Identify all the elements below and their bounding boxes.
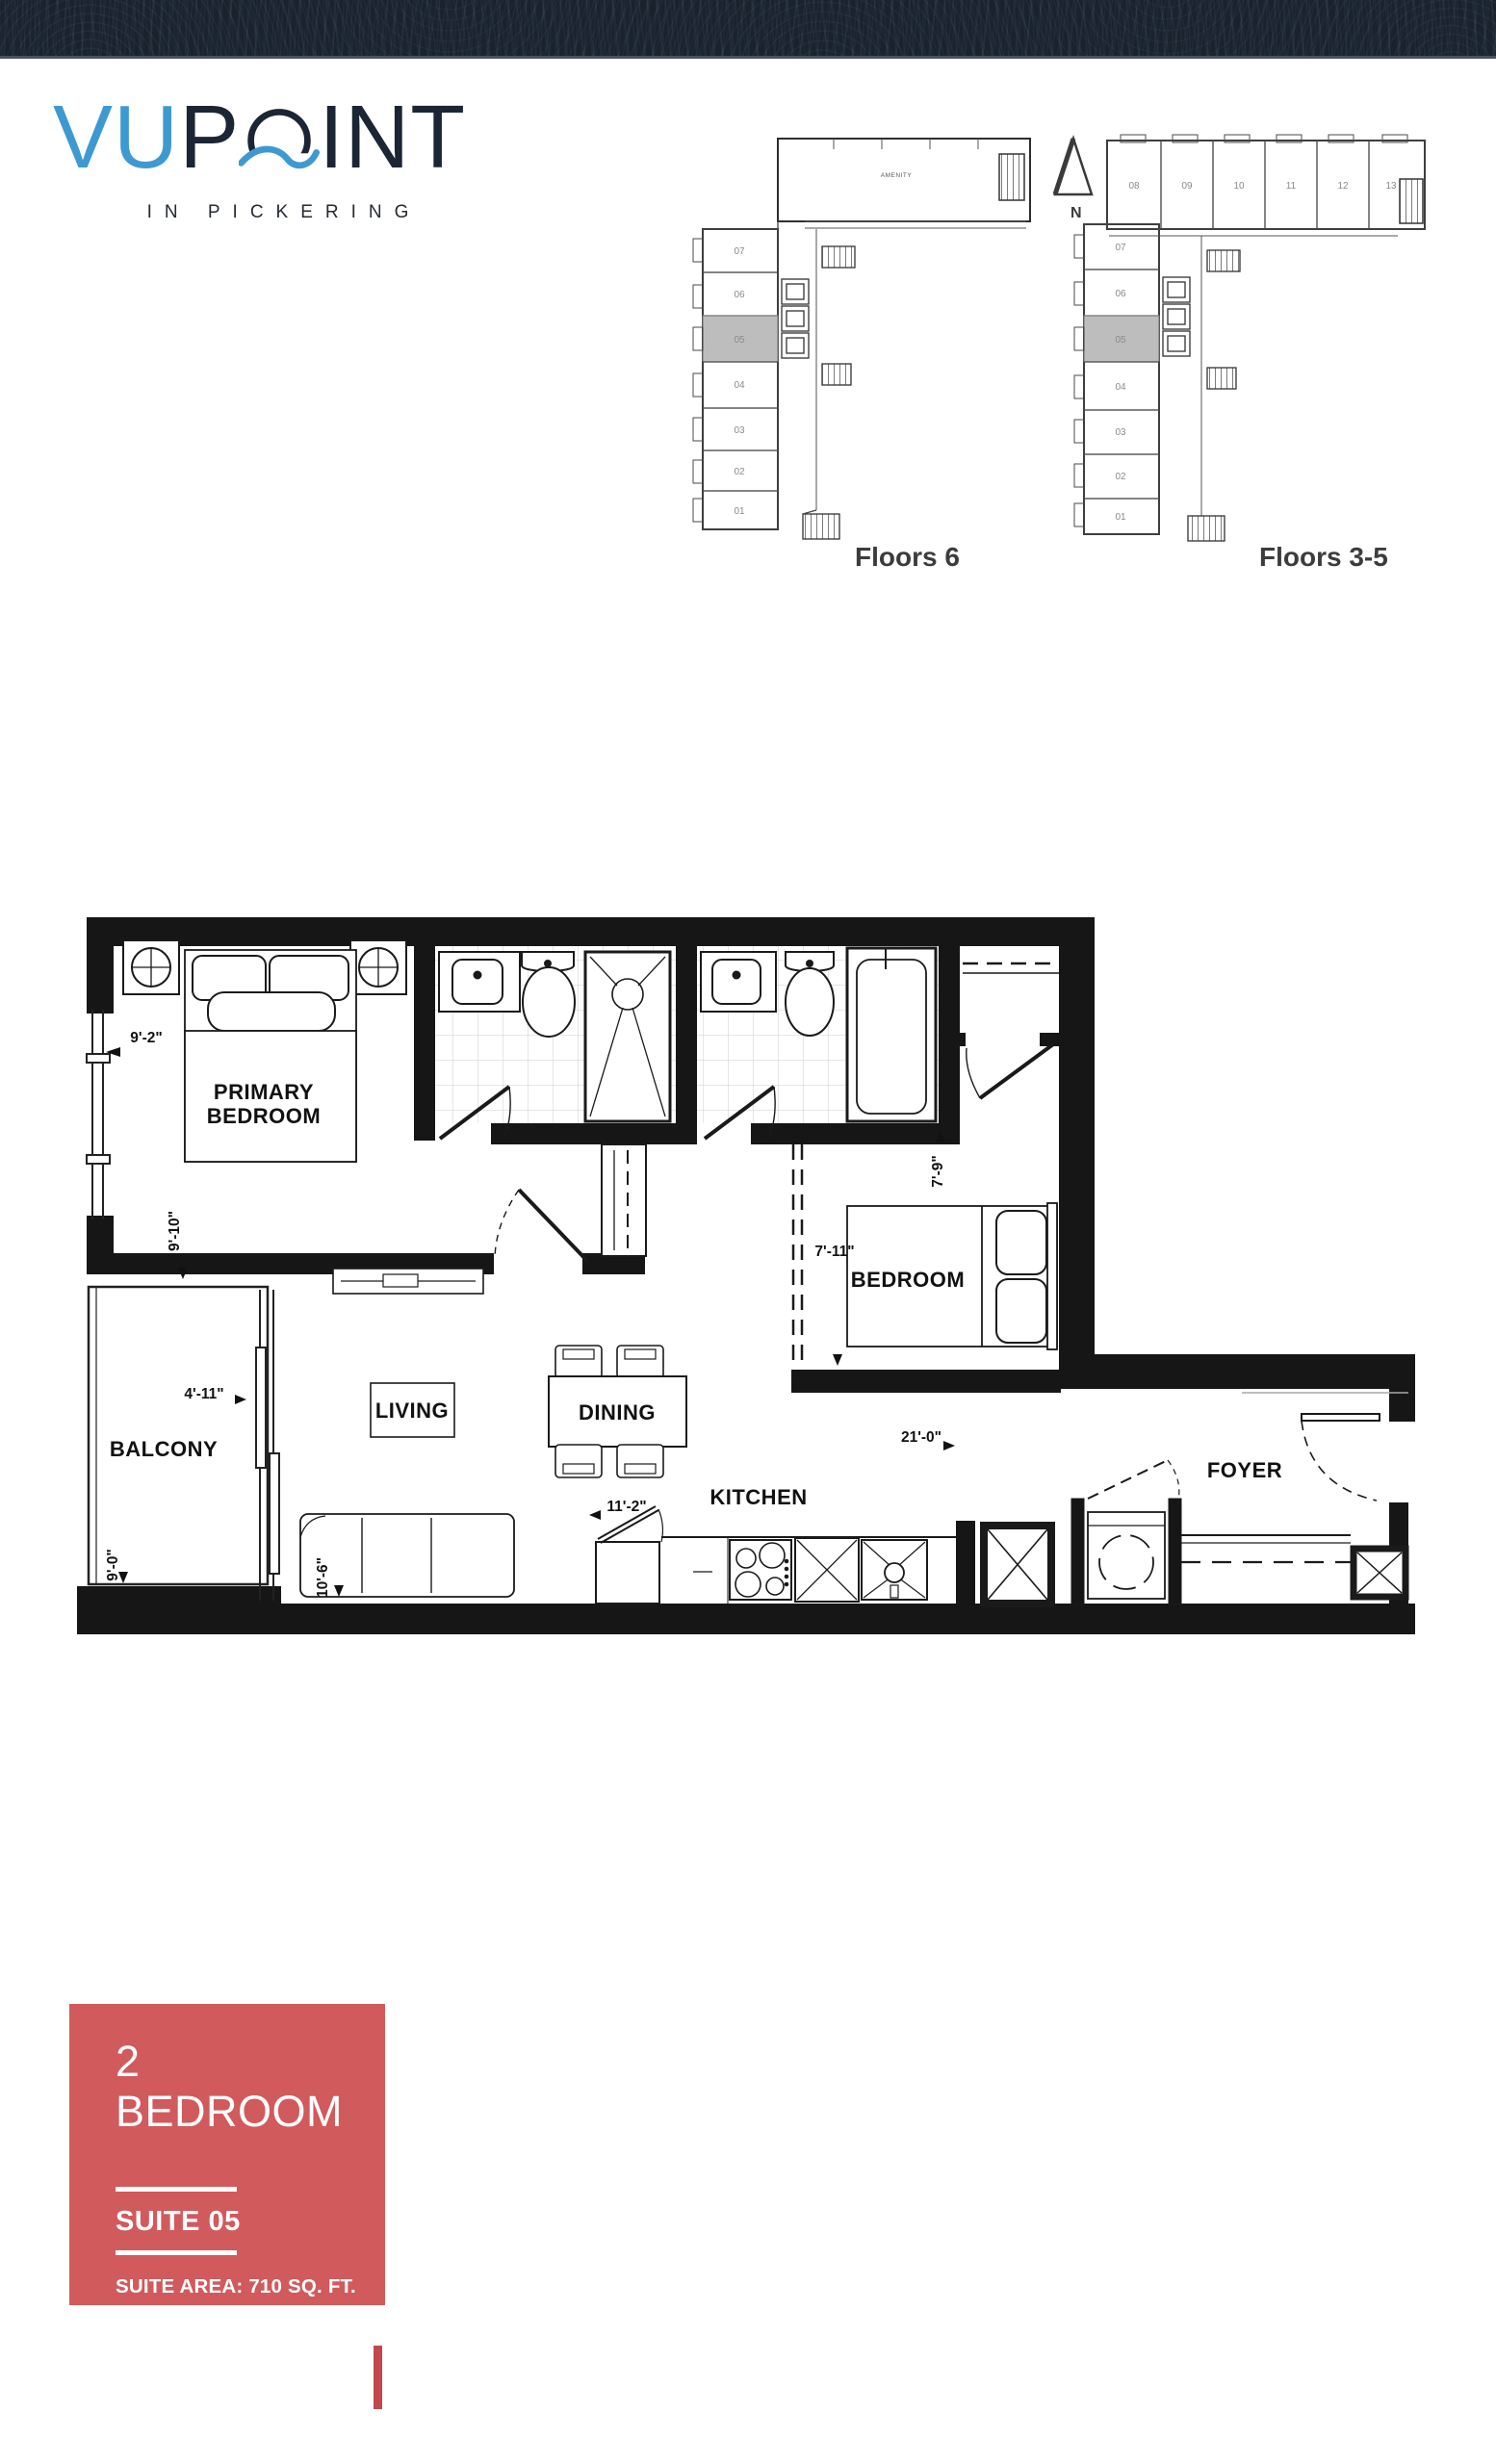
svg-text:08: 08 bbox=[1128, 181, 1140, 192]
living-furniture bbox=[300, 1269, 514, 1597]
dim-bedroom-depth: 7'-9" bbox=[930, 1155, 946, 1187]
logo-int-text: INT bbox=[319, 90, 466, 185]
svg-text:06: 06 bbox=[1115, 289, 1126, 299]
svg-text:10: 10 bbox=[1233, 181, 1245, 192]
svg-text:07: 07 bbox=[734, 246, 745, 257]
keyplan2-left-unit-numbers: 07 06 05 04 03 02 01 bbox=[1115, 243, 1126, 523]
logo-p-text: P bbox=[179, 90, 240, 185]
dining-label: DINING bbox=[579, 1400, 656, 1424]
keyplan-floors-3-5: 08 09 10 11 12 13 07 0 bbox=[1070, 133, 1431, 545]
dim-living-width: 10'-6" bbox=[315, 1557, 331, 1598]
page-accent-mark bbox=[374, 2346, 382, 2409]
keyplan1-caption: Floors 6 bbox=[855, 542, 960, 573]
primary-bedroom-label-2: BEDROOM bbox=[207, 1104, 321, 1128]
hall-closet bbox=[602, 1144, 646, 1256]
primary-bedroom-window bbox=[87, 1010, 110, 1219]
svg-text:04: 04 bbox=[734, 380, 745, 391]
svg-text:09: 09 bbox=[1181, 181, 1193, 192]
svg-text:02: 02 bbox=[1115, 472, 1126, 482]
dim-suite-width: 21'-0" bbox=[901, 1429, 941, 1446]
logo-o-wave-icon bbox=[239, 90, 320, 189]
dim-kitchen-width: 11'-2" bbox=[606, 1499, 646, 1515]
primary-bedroom-label-1: PRIMARY bbox=[214, 1080, 314, 1104]
foyer-fixtures bbox=[984, 1460, 1406, 1604]
suite-number-label: SUITE 05 bbox=[116, 2206, 366, 2238]
foyer-label: FOYER bbox=[1207, 1458, 1282, 1482]
living-label: LIVING bbox=[375, 1399, 449, 1423]
svg-text:11: 11 bbox=[1286, 181, 1297, 192]
suite-info-card: 2 BEDROOM SUITE 05 SUITE AREA: 710 SQ. F… bbox=[69, 2004, 385, 2305]
svg-text:13: 13 bbox=[1385, 181, 1397, 192]
suite-floorplan: PRIMARY BEDROOM BEDROOM LIVING DINING KI… bbox=[77, 910, 1415, 1641]
logo-tagline: IN PICKERING bbox=[53, 202, 505, 223]
svg-text:03: 03 bbox=[734, 425, 745, 436]
dim-balcony-depth: 9'-0" bbox=[105, 1549, 121, 1580]
brand-wordmark: VUP INT bbox=[53, 90, 505, 189]
keyplan2-caption: Floors 3-5 bbox=[1259, 542, 1388, 573]
kitchen-fixtures bbox=[596, 1506, 956, 1604]
svg-text:01: 01 bbox=[1115, 512, 1126, 523]
kitchen-label: KITCHEN bbox=[709, 1485, 807, 1509]
primary-bedroom-furniture bbox=[123, 940, 406, 1162]
svg-text:03: 03 bbox=[1115, 427, 1126, 438]
svg-text:05: 05 bbox=[1115, 335, 1126, 346]
keyplan-floors-6: AMENITY 07 06 05 04 03 02 01 bbox=[689, 133, 1040, 545]
dim-primary-width: 9'-2" bbox=[130, 1030, 162, 1046]
card-divider bbox=[116, 2250, 237, 2255]
svg-text:05: 05 bbox=[734, 335, 745, 346]
svg-text:06: 06 bbox=[734, 290, 745, 300]
floorplan-sheet: VUP INT IN PICKERING AMENITY bbox=[0, 0, 1496, 2464]
balcony-label: BALCONY bbox=[110, 1437, 218, 1461]
bedroom-label: BEDROOM bbox=[851, 1268, 965, 1292]
svg-text:02: 02 bbox=[734, 467, 745, 477]
suite-type-title: 2 BEDROOM bbox=[116, 2037, 366, 2137]
card-divider bbox=[116, 2187, 237, 2192]
balcony-area-line: BALCONY: 45 SQ. FT. bbox=[116, 2302, 366, 2333]
dim-balcony-width: 4'-11" bbox=[184, 1386, 223, 1402]
logo-vu-text: VU bbox=[53, 90, 179, 185]
suite-area-line: SUITE AREA: 710 SQ. FT. bbox=[116, 2271, 366, 2302]
svg-text:07: 07 bbox=[1115, 243, 1126, 253]
svg-text:12: 12 bbox=[1337, 181, 1349, 192]
dim-primary-depth: 9'-10" bbox=[167, 1211, 183, 1251]
keyplan1-unit-numbers: 07 06 05 04 03 02 01 bbox=[734, 246, 745, 517]
svg-text:04: 04 bbox=[1115, 382, 1126, 393]
suite-area-details: SUITE AREA: 710 SQ. FT. BALCONY: 45 SQ. … bbox=[116, 2271, 366, 2333]
keyplan1-amenity-label: AMENITY bbox=[881, 172, 913, 179]
keyplan2-top-unit-numbers: 08 09 10 11 12 13 bbox=[1128, 181, 1397, 192]
dim-bedroom-width: 7'-11" bbox=[814, 1244, 854, 1260]
decorative-top-banner bbox=[0, 0, 1496, 59]
svg-text:01: 01 bbox=[734, 506, 745, 517]
brand-logo: VUP INT IN PICKERING bbox=[53, 90, 505, 223]
